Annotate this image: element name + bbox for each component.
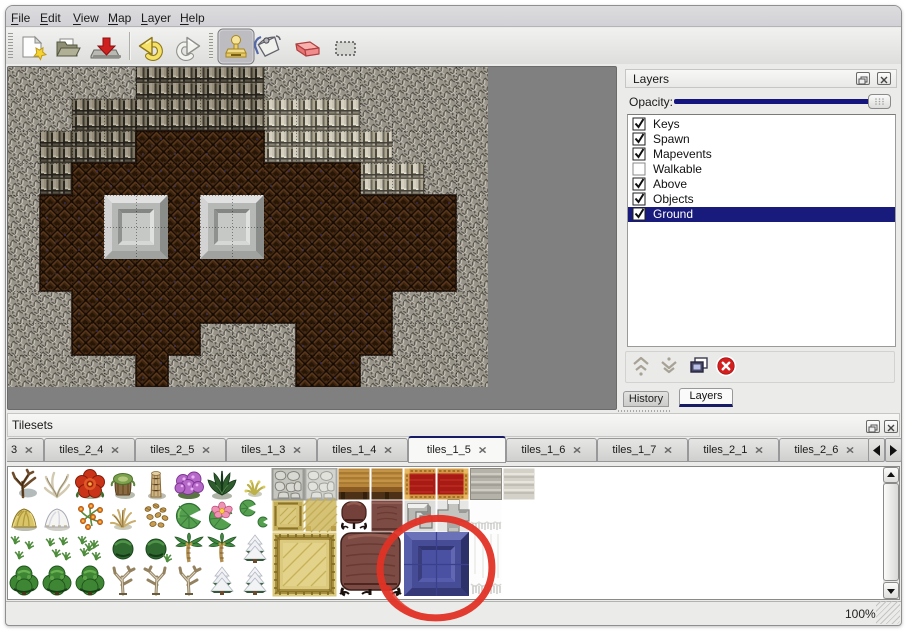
svg-text:Walkable: Walkable (653, 162, 702, 176)
svg-text:Objects: Objects (653, 192, 694, 206)
svg-text:Keys: Keys (653, 117, 680, 131)
svg-text:Ground: Ground (653, 207, 693, 221)
svg-text:Mapevents: Mapevents (653, 147, 712, 161)
svg-text:Above: Above (653, 177, 687, 191)
svg-text:Spawn: Spawn (653, 132, 690, 146)
